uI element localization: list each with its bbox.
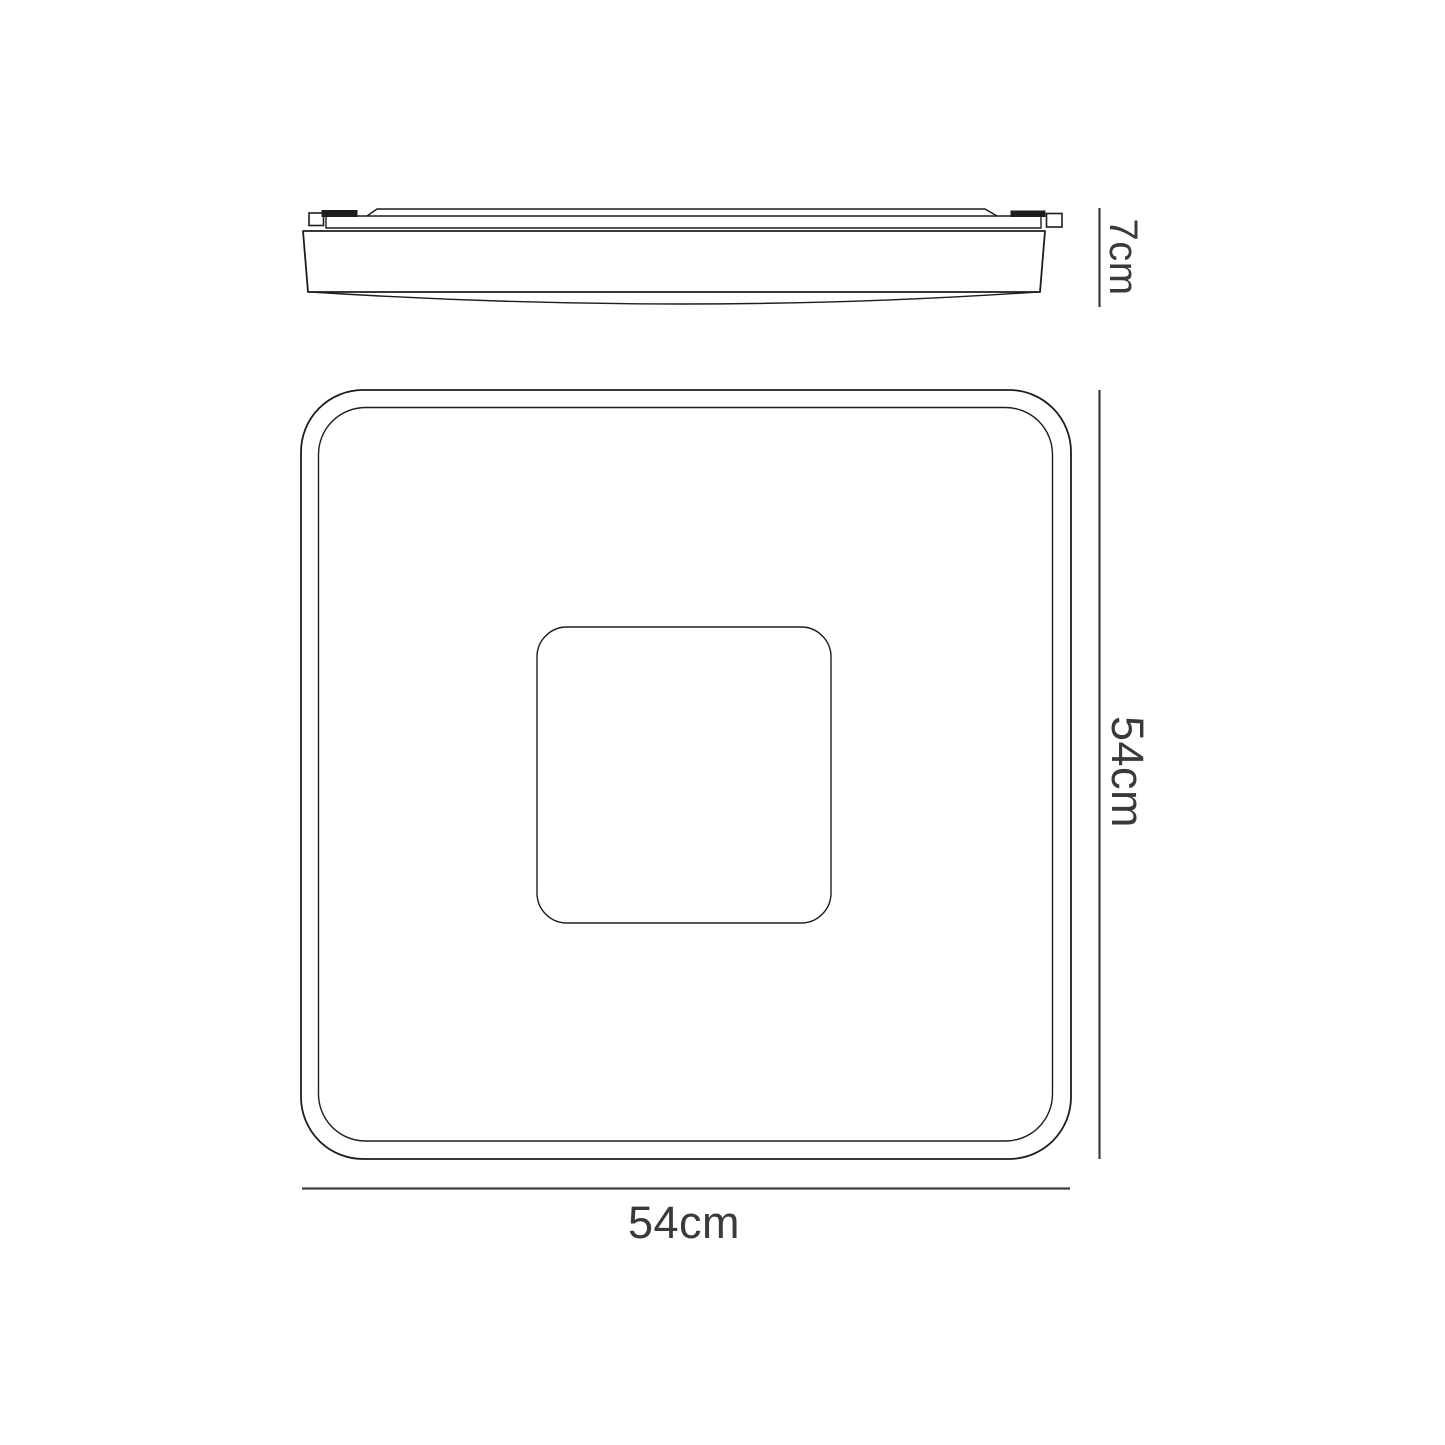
technical-drawing-canvas: 7cm 54cm 54cm <box>0 0 1445 1445</box>
depth-dimension-label: 7cm <box>1101 218 1145 295</box>
front-view <box>301 390 1071 1159</box>
side-view-right-bracket <box>1047 214 1063 228</box>
width-dimension-label: 54cm <box>628 1197 740 1248</box>
front-view-outer-frame <box>301 390 1071 1159</box>
side-view-mounting-plate <box>326 216 1041 228</box>
side-view-plate-raised-profile <box>367 209 997 216</box>
side-view-left-bracket <box>309 213 324 226</box>
side-view-diffuser-curve <box>311 292 1037 304</box>
side-view <box>303 209 1062 304</box>
ceiling-light-dimension-drawing: 7cm 54cm 54cm <box>0 0 1445 1445</box>
side-view-body <box>303 231 1045 292</box>
front-view-inner-frame <box>319 408 1053 1142</box>
side-view-right-clip <box>1011 211 1045 217</box>
side-view-left-clip <box>322 211 357 217</box>
height-dimension-label: 54cm <box>1102 716 1153 828</box>
front-view-center-panel <box>537 627 831 923</box>
dimension-annotations: 7cm 54cm 54cm <box>302 208 1153 1248</box>
